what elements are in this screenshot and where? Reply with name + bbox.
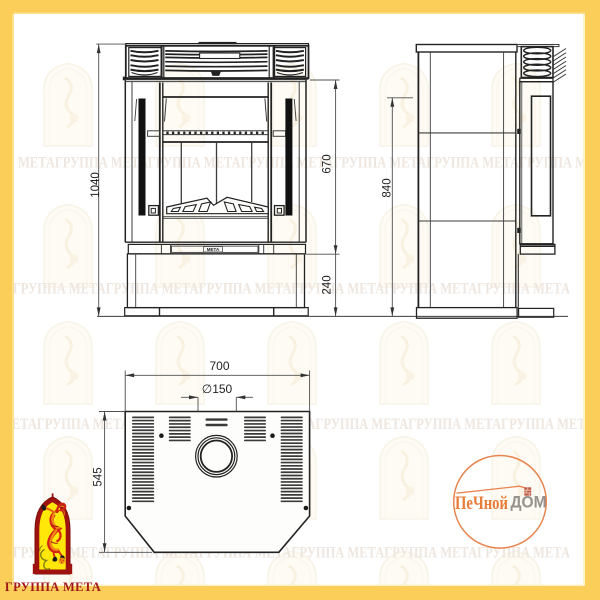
svg-text:545: 545 xyxy=(93,467,105,486)
svg-text:ПеЧной: ПеЧной xyxy=(455,493,508,514)
svg-text:МЕТА: МЕТА xyxy=(207,247,220,252)
svg-text:240: 240 xyxy=(322,275,334,294)
svg-text:840: 840 xyxy=(382,178,394,197)
svg-text:1040: 1040 xyxy=(90,172,102,198)
svg-text:ГРУППА МЕТАГРУППА МЕТАГРУППА М: ГРУППА МЕТАГРУППА МЕТАГРУППА МЕТАГРУППА … xyxy=(0,545,571,562)
svg-text:700: 700 xyxy=(209,359,229,373)
svg-text:ГРУППА МЕТАГРУППА МЕТАГРУППА М: ГРУППА МЕТАГРУППА МЕТАГРУППА МЕТАГРУППА … xyxy=(0,281,571,298)
svg-text:ДОМ: ДОМ xyxy=(511,493,547,512)
svg-text:670: 670 xyxy=(322,154,334,173)
svg-text:∅150: ∅150 xyxy=(202,382,233,396)
svg-text:ГРУППА МЕТА: ГРУППА МЕТА xyxy=(5,580,101,594)
svg-text:ГРУППА МЕТАГРУППА МЕТАГРУППА М: ГРУППА МЕТАГРУППА МЕТАГРУППА МЕТАГРУППА … xyxy=(0,155,600,172)
